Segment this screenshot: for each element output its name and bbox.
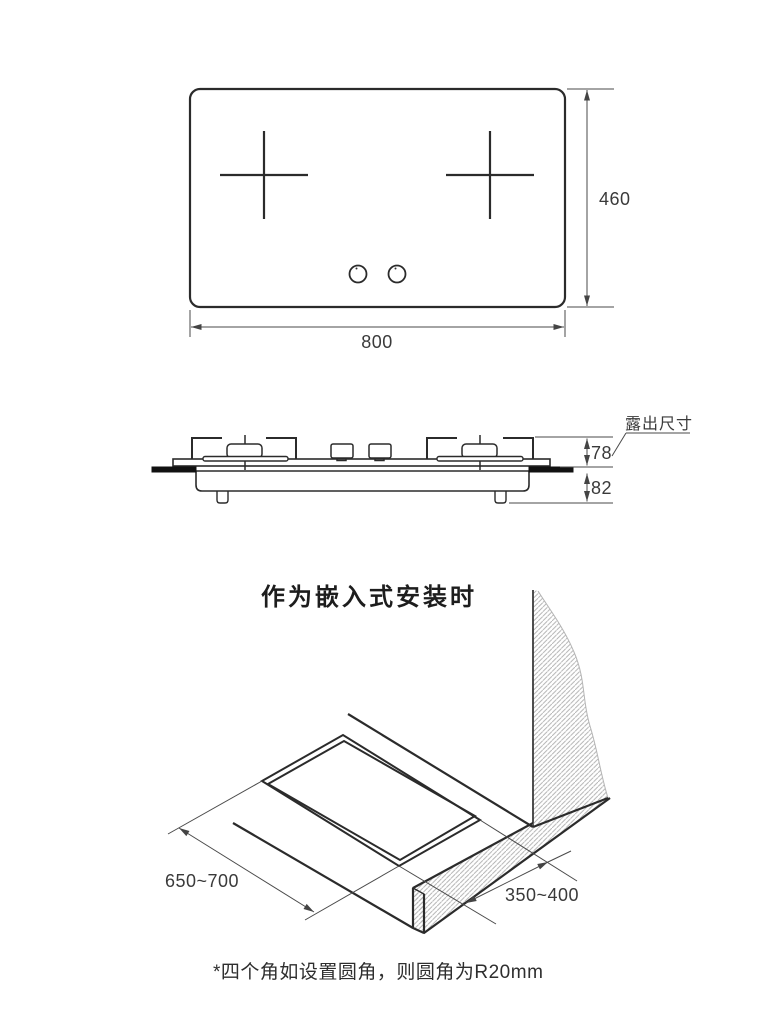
cutout-depth-label: 350~400 — [502, 885, 582, 906]
exposed-label-leader — [612, 433, 690, 456]
top-view-drawing — [190, 89, 614, 337]
dimension-below-counter-label: 82 — [591, 478, 612, 499]
exposed-size-label: 露出尺寸 — [625, 410, 693, 434]
cutout-width-label: 650~700 — [160, 871, 244, 892]
dimension-diagram-page: 460 800 露出尺寸 78 82 作为嵌入式安装时 650~700 350~… — [0, 0, 768, 1024]
cooktop-outline — [190, 89, 565, 307]
right-foot — [495, 491, 506, 503]
countertop-right-section — [529, 467, 573, 472]
counter-corner-section — [413, 888, 424, 933]
dimension-above-counter-label: 78 — [591, 443, 612, 464]
dimension-height-label: 460 — [599, 189, 631, 210]
installation-title: 作为嵌入式安装时 — [249, 577, 489, 612]
wall-hatch-area — [533, 590, 608, 827]
left-foot — [217, 491, 228, 503]
cutout-opening — [262, 735, 480, 866]
cooktop-body — [196, 471, 529, 491]
corner-radius-note: *四个角如设置圆角，则圆角为R20mm — [213, 957, 543, 984]
dimension-width-label: 800 — [352, 332, 402, 353]
diagram-linework — [0, 0, 768, 1024]
side-knobs — [331, 444, 391, 461]
countertop-left-section — [152, 467, 196, 472]
